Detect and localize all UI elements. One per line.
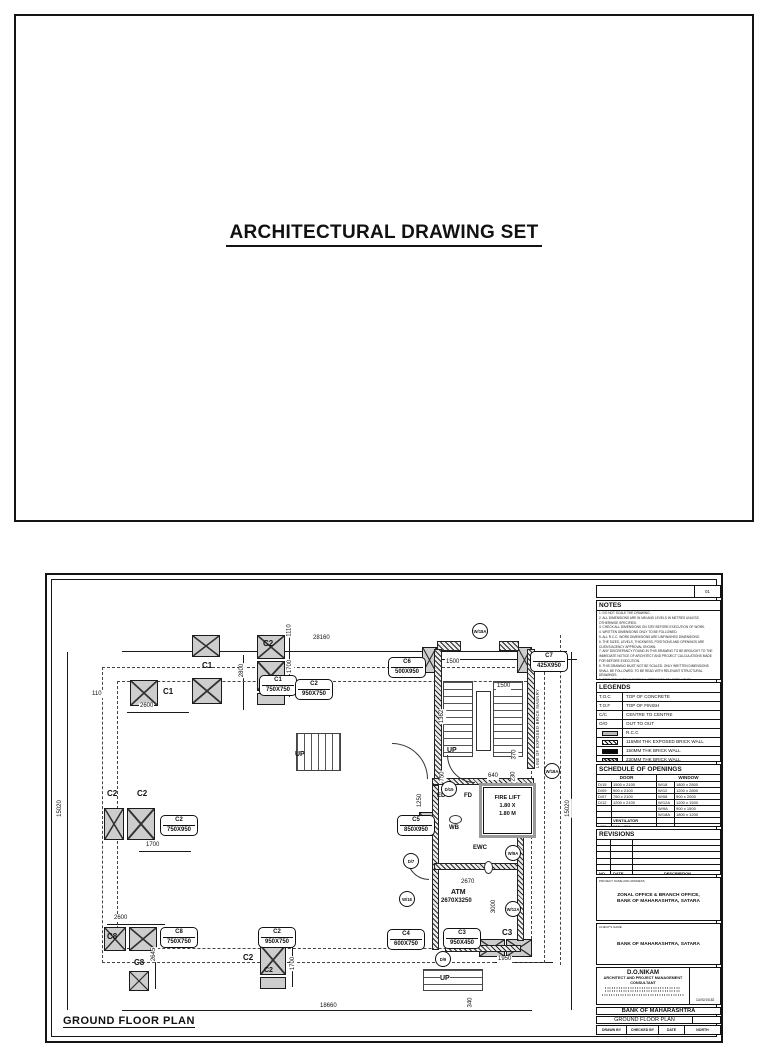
drawing-strip-cell — [692, 1017, 720, 1023]
dim-2645: 2645 — [151, 947, 158, 962]
cell: 750 x 2100 — [612, 794, 657, 799]
tag-name: C7 — [545, 653, 553, 659]
up-label: UP — [440, 975, 450, 982]
revisions-title: REVISIONS — [597, 830, 720, 840]
dim-1700: 1700 — [290, 956, 297, 971]
legend-value: 230MM THK BRICK WALL — [623, 756, 681, 762]
project-caption: PROJECT NAME AND ADDRESS — [597, 878, 720, 883]
legend-swatch-rcc — [597, 729, 623, 737]
legends-title: LEGENDS — [597, 683, 720, 693]
date-cell: DATE — [659, 1026, 685, 1034]
note-line: 8. THIS DRAWING MUST NOT BE SCALED. ONLY… — [597, 664, 720, 678]
tag-size: 750X750 — [262, 685, 294, 694]
col-label-c8: C8 — [134, 958, 144, 967]
fire-lift-text: FIRE LIFT — [484, 794, 531, 802]
cell: 600 x 750 — [612, 824, 657, 827]
revisions-footer: NO DATE DESCRIPTION — [597, 871, 720, 875]
column-c1 — [192, 678, 222, 704]
dim-110: 110 — [91, 691, 103, 698]
note-line: 2. ALL DIMENSIONS ARE IN MM AND LEVELS I… — [597, 616, 720, 626]
north-cell: NORTH — [685, 1026, 720, 1034]
cell — [612, 812, 657, 817]
legend-value: CENTRE TO CENTRE — [623, 711, 673, 719]
cell: D/07 — [597, 794, 612, 799]
up-label: UP — [295, 751, 305, 758]
legend-value: TOP OF FINISH — [623, 702, 659, 710]
cover-title-wrap: ARCHITECTURAL DRAWING SET — [16, 222, 752, 244]
notes-title: NOTES — [597, 601, 720, 611]
legend-row: 150MM THK BRICK WALL — [597, 747, 720, 756]
legends-box: LEGENDS T.O.C TOP OF CONCRETE T.O.F TOP … — [596, 682, 721, 762]
cell: VENTILATOR — [612, 818, 657, 823]
architect-contact-line — [602, 994, 685, 996]
masonry-note: LINE OF EXPOSED BRICK MASNRY — [535, 663, 540, 768]
tag-name: C4 — [402, 931, 410, 937]
cell — [657, 824, 675, 827]
cover-page: ARCHITECTURAL DRAWING SET — [14, 14, 754, 522]
architect-address-line — [605, 987, 680, 989]
dim-370: 370 — [512, 748, 519, 760]
tag-name: C5 — [412, 817, 420, 823]
atm-label: ATM — [451, 889, 466, 896]
cell: 1800 x 2800 — [675, 782, 720, 787]
column-c2 — [127, 808, 155, 840]
legend-row: T.O.C TOP OF CONCRETE — [597, 693, 720, 702]
legend-value: 150MM THK BRICK WALL — [623, 747, 681, 755]
dim-line-top — [122, 651, 567, 652]
client-name: BANK OF MAHARASHTRA, SATARA — [597, 942, 720, 948]
dim-15020-left: 15020 — [57, 799, 64, 818]
opening-ref-d15: D/15 — [441, 781, 457, 797]
revisions-date: DATE — [611, 871, 633, 875]
cell: D/15 — [597, 782, 612, 787]
tag-c4: C4 600X750 — [387, 929, 425, 950]
dim-1362: 1362 — [439, 709, 446, 724]
bank-strip: BANK OF MAHARASHTRA — [596, 1007, 721, 1015]
project-name: ZONAL OFFICE & BRANCH OFFICE, BANK OF MA… — [597, 893, 720, 905]
tag-c3: C3 950X450 — [443, 928, 481, 949]
fire-lift-size-y: 1.80 M — [484, 810, 531, 818]
column-c8 — [129, 971, 149, 991]
tag-size: 950X750 — [261, 937, 293, 946]
up-label: UP — [447, 747, 457, 754]
tag-name: C2 — [273, 929, 281, 935]
tag-name: C6 — [403, 659, 411, 665]
dim-1500: 1500 — [445, 659, 460, 666]
cell: 900 x 2100 — [612, 788, 657, 793]
ewc-label: EWC — [473, 845, 487, 851]
tag-c2-mid: C2 750X950 — [160, 815, 198, 836]
architect-address-line — [605, 990, 680, 992]
boundary-right — [560, 635, 561, 965]
stair-flight — [443, 681, 473, 757]
dim-3000: 3000 — [491, 899, 498, 914]
revisions-description: DESCRIPTION — [633, 871, 720, 875]
stair-rail — [476, 691, 491, 751]
tag-name: C1 — [274, 677, 282, 683]
dim-1110: 1110 — [287, 623, 294, 637]
legend-swatch-brick-230 — [597, 756, 623, 762]
col-label-c3: C3 — [502, 928, 512, 937]
column-c2 — [104, 808, 124, 840]
legend-swatch-exposed-brick — [597, 738, 623, 746]
wb-label: WB — [449, 825, 459, 831]
col-label-c8: C8 — [107, 932, 117, 941]
cell: D/12 — [597, 800, 612, 805]
dim-2670: 2670 — [460, 879, 475, 886]
col-label-c2: C2 — [243, 953, 253, 962]
fire-lift-label: FIRE LIFT 1.80 X 1.80 M — [483, 787, 532, 834]
col-label-c2: C2 — [263, 639, 273, 648]
atm-size-label: 2670X3250 — [441, 898, 472, 904]
opening-ref-w12a: W/12A — [505, 901, 521, 917]
architect-info: D.O.NIKAM ARCHITECT AND PROJECT MANAGEME… — [597, 968, 690, 1004]
dim-1500: 1500 — [496, 683, 511, 690]
note-line: 9. PROVIDE LINTELS OVER ALL OPENINGS AT … — [597, 678, 720, 680]
dim-line-left — [67, 652, 68, 1010]
dim-line-bottom — [122, 1010, 532, 1011]
dim-1700: 1700 — [145, 842, 160, 849]
tag-name: C2 — [175, 817, 183, 823]
dim-15020-right: 15020 — [565, 799, 572, 818]
legend-key: O/O — [597, 720, 623, 728]
tag-size: 425X950 — [533, 661, 565, 670]
legend-row: 230MM THK BRICK WALL — [597, 756, 720, 762]
project-box: PROJECT NAME AND ADDRESS ZONAL OFFICE & … — [596, 877, 721, 921]
cover-title: ARCHITECTURAL DRAWING SET — [226, 222, 541, 247]
opening-ref-w9a: W/9A — [505, 845, 521, 861]
cell — [675, 818, 720, 823]
tag-size: 500X950 — [391, 667, 423, 676]
fd-label: FD — [464, 793, 472, 799]
legend-key: C/C — [597, 711, 623, 719]
tag-c2-bottom: C2 950X750 — [258, 927, 296, 948]
tag-size: 750X950 — [163, 825, 195, 834]
checked-by: CHECKED BY — [627, 1026, 659, 1034]
cell: W/18A — [657, 812, 675, 817]
cell: 900 x 1500 — [675, 806, 720, 811]
tag-name: C3 — [458, 930, 466, 936]
cell: W/12 — [657, 788, 675, 793]
tag-c2: C2 950X750 — [295, 679, 333, 700]
cell: 1800 x 1200 — [675, 812, 720, 817]
wash-basin — [449, 815, 462, 824]
opening-ref-w18: W/18 — [399, 891, 415, 907]
cell: V/06 — [597, 824, 612, 827]
cell: 1200 x 2800 — [675, 788, 720, 793]
bank-name: BANK OF MAHARASHTRA — [622, 1008, 696, 1014]
dim-18660: 18660 — [319, 1003, 338, 1010]
cell — [675, 824, 720, 827]
sheet-number: 01 — [694, 586, 720, 597]
tag-c6: C6 500X950 — [388, 657, 426, 678]
schedule-door-header: DOOR — [597, 775, 657, 781]
cell — [612, 806, 657, 811]
notes-box: NOTES 1. DO NOT SCALE THE DRAWING. 2. AL… — [596, 600, 721, 680]
legend-row: O/O OUT TO OUT — [597, 720, 720, 729]
cell — [597, 812, 612, 817]
revisions-no: NO — [597, 871, 611, 875]
note-line: 6. THE SIZES, LEVELS, THICKNESS, POSITIO… — [597, 640, 720, 650]
legend-row: R.C.C — [597, 729, 720, 738]
tag-size: 750X750 — [163, 937, 195, 946]
entry-steps-bottom — [423, 969, 483, 991]
legend-row: 115MM THK EXPOSED BRICK WALL — [597, 738, 720, 747]
cell: W/9A — [657, 806, 675, 811]
dim-2600: 2600 — [113, 915, 128, 922]
cell: D/09 — [597, 788, 612, 793]
sheet-number-strip: 01 — [596, 585, 721, 598]
cell: 1500 x 2100 — [612, 782, 657, 787]
architect-reg: CA/92/15182 — [696, 998, 715, 1002]
cell: W/12A — [657, 800, 675, 805]
cell — [597, 806, 612, 811]
cell — [657, 818, 675, 823]
client-box: CLIENT'S NAME BANK OF MAHARASHTRA, SATAR… — [596, 923, 721, 965]
opening-ref-d9: D/9 — [435, 951, 451, 967]
dim-340: 340 — [468, 996, 475, 1008]
architect-reg-cell: CA/92/15182 — [690, 968, 720, 1004]
column-c2-base — [260, 977, 286, 989]
schedule-header: DOOR WINDOW — [597, 775, 720, 782]
drawing-title: GROUND FLOOR PLAN — [597, 1017, 692, 1023]
dim-line-right — [571, 652, 572, 1010]
col-label-c2: C2 — [264, 967, 273, 974]
dim-2800: 2800 — [239, 663, 246, 678]
legend-value: 115MM THK EXPOSED BRICK WALL — [623, 738, 704, 746]
dim-1250: 1250 — [417, 793, 424, 808]
drawing-strip: GROUND FLOOR PLAN — [596, 1016, 721, 1024]
cell: 1200 x 1500 — [675, 800, 720, 805]
revisions-box: REVISIONS NO DATE DESCRIPTION — [596, 829, 721, 875]
col-label-c1: C1 — [202, 661, 212, 670]
opening-ref-d7: D/7 — [403, 853, 419, 869]
dim-1700: 1700 — [287, 659, 294, 674]
legend-value: TOP OF CONCRETE — [623, 693, 670, 701]
cell: 900 x 2000 — [675, 794, 720, 799]
opening-ref-w18a: W/18A — [472, 623, 488, 639]
cell — [597, 818, 612, 823]
tag-c5: C5 850X950 — [397, 815, 435, 836]
drawn-by: DRAWN BY — [597, 1026, 627, 1034]
architect-box: D.O.NIKAM ARCHITECT AND PROJECT MANAGEME… — [596, 967, 721, 1005]
legend-value: OUT TO OUT — [623, 720, 654, 728]
dim-230: 230 — [511, 770, 518, 782]
dim-28160: 28160 — [312, 635, 331, 642]
col-label-c1: C1 — [163, 687, 173, 696]
legend-key: T.O.C — [597, 693, 623, 701]
schedule-row: V/06 600 x 750 — [597, 824, 720, 827]
plan-title: GROUND FLOOR PLAN — [63, 1015, 195, 1028]
opening-ref-w18a: W/18A — [544, 763, 560, 779]
titleblock-footer: DRAWN BY CHECKED BY DATE NORTH — [596, 1025, 721, 1035]
schedule-box: SCHEDULE OF OPENINGS DOOR WINDOW D/15 15… — [596, 764, 721, 827]
fire-lift-size-x: 1.80 X — [484, 802, 531, 810]
architect-role: ARCHITECT AND PROJECT MANAGEMENT CONSULT… — [597, 976, 689, 985]
tag-c1: C1 750X750 — [259, 675, 297, 696]
col-label-c2: C2 — [137, 789, 147, 798]
column-c1 — [192, 635, 220, 657]
tag-c8: C8 750X750 — [160, 927, 198, 948]
legend-key: T.O.F — [597, 702, 623, 710]
legend-row: T.O.F TOP OF FINISH — [597, 702, 720, 711]
stair-flight — [493, 681, 523, 757]
fire-lift: FIRE LIFT 1.80 X 1.80 M — [479, 783, 536, 838]
tag-size: 950X750 — [298, 689, 330, 698]
wall — [499, 641, 519, 651]
schedule-title: SCHEDULE OF OPENINGS — [597, 765, 720, 775]
dim-1950: 1950 — [497, 956, 512, 963]
legend-value: R.C.C — [623, 729, 639, 737]
wall — [434, 863, 519, 870]
legend-swatch-brick-150 — [597, 747, 623, 755]
legend-row: C/C CENTRE TO CENTRE — [597, 711, 720, 720]
tag-size: 850X950 — [400, 825, 432, 834]
tag-size: 600X750 — [390, 939, 422, 948]
dim-640: 640 — [487, 773, 499, 780]
cell: 1200 x 2100 — [612, 800, 657, 805]
toilet-ewc — [484, 861, 493, 874]
tag-name: C2 — [310, 681, 318, 687]
schedule-window-header: WINDOW — [657, 775, 720, 781]
cell: W/08 — [657, 794, 675, 799]
col-label-c2: C2 — [107, 789, 117, 798]
drawing-sheet: FIRE LIFT 1.80 X 1.80 M 28160 15020 1502… — [45, 573, 723, 1043]
tag-c7: C7 425X950 — [530, 651, 568, 672]
client-caption: CLIENT'S NAME — [597, 924, 720, 929]
note-line: 7. ANY DISCREPANCY FOUND IN THIS DRAWING… — [597, 649, 720, 663]
tag-name: C8 — [175, 929, 183, 935]
cell: W/18 — [657, 782, 675, 787]
tag-size: 950X450 — [446, 938, 478, 947]
dim-2600: 2600 — [139, 703, 154, 710]
